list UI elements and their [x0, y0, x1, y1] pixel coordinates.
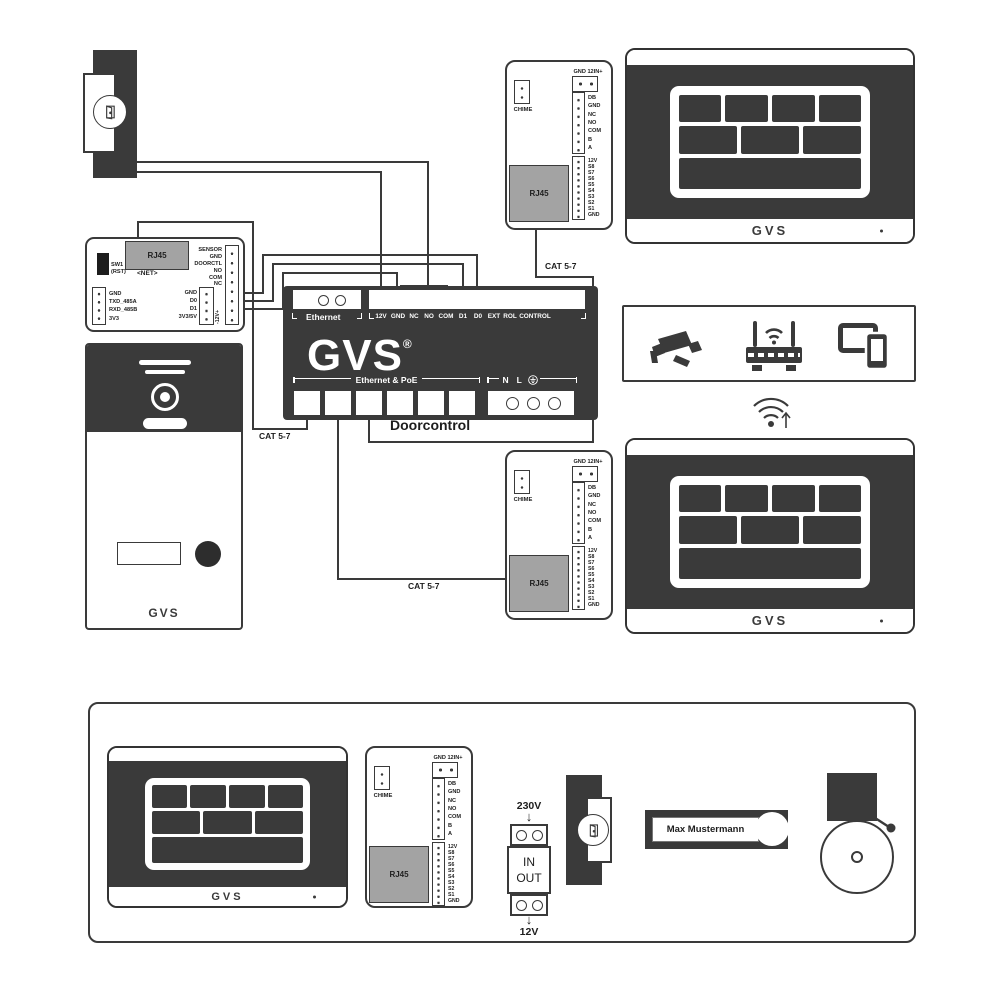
- rj45-port: RJ45: [369, 846, 429, 903]
- s-connector: [572, 156, 585, 220]
- mic-dot: [313, 895, 316, 898]
- pin-label: NO: [588, 119, 612, 127]
- monitor-top-strip: [627, 440, 913, 455]
- monitor-bottom-strip: GVS: [627, 609, 913, 632]
- monitor-top-strip: [109, 748, 346, 761]
- pin-label: NC: [588, 501, 612, 509]
- pin-label: NC: [409, 313, 418, 320]
- pin-label: GND: [448, 788, 472, 796]
- station-brand: GVS: [87, 606, 241, 620]
- io-connector: [199, 287, 214, 325]
- psu-out-label: OUT: [516, 871, 541, 885]
- power-in-connector: [572, 466, 598, 482]
- chime-label: CHIME: [509, 107, 537, 113]
- low-voltage-label: 12V: [505, 926, 553, 938]
- bus-connector: [572, 92, 585, 154]
- s-pin-labels: 12VS8S7S6S5S4S3S2S1GND: [588, 158, 612, 218]
- rs485-connector: [92, 287, 106, 325]
- pin-label: GND: [109, 290, 154, 298]
- pin-label: B: [588, 136, 612, 144]
- pin-label: GND: [588, 602, 612, 608]
- sensor-slot: [143, 418, 187, 429]
- chime-connector: [514, 470, 530, 494]
- chime-module-2: CHIME GND 12IN+ DBGNDNCNOCOMBA 12VS8S7S6…: [505, 450, 613, 620]
- poe-label-row: Ethernet & PoE: [293, 377, 480, 387]
- call-button[interactable]: [195, 541, 221, 567]
- l-label: L: [513, 375, 526, 385]
- pin-label: NC: [588, 111, 612, 119]
- door-icon: [584, 821, 603, 840]
- network-devices-box: [622, 305, 916, 382]
- poe-port-5[interactable]: [417, 390, 445, 416]
- wiring-diagram: RJ45 <NET> SW1 (RST) GNDTXD_485ARXD_485B…: [0, 0, 1000, 1000]
- psu-in-label: IN: [523, 855, 535, 869]
- net-module: RJ45 <NET> SW1 (RST) GNDTXD_485ARXD_485B…: [85, 237, 245, 332]
- chime-connector: [374, 766, 390, 790]
- pin-label: COM: [177, 275, 222, 282]
- pin-label: SENSOR: [177, 247, 222, 254]
- cat5-label-2: CAT 5-7: [408, 581, 440, 591]
- pin-label: DB: [588, 94, 612, 102]
- monitor-brand: GVS: [752, 223, 788, 238]
- gnd12in-label: GND 12IN+: [565, 69, 611, 75]
- monitor-ui-tiles: [670, 86, 870, 198]
- pin-label: GND: [588, 492, 612, 500]
- monitor-bottom-strip: GVS: [627, 219, 913, 242]
- rj45-port: RJ45: [509, 555, 569, 612]
- monitor-top-strip: [627, 50, 913, 65]
- pin-label: COM: [588, 517, 612, 525]
- gnd12in-label: GND 12IN+: [565, 459, 611, 465]
- relay-pin-labels: SENSORGNDDOORCTLNOCOMNC: [177, 247, 222, 288]
- pin-label: GND: [177, 254, 222, 261]
- gnd12in-label: GND 12IN+: [425, 755, 471, 761]
- rs485-pin-labels: GNDTXD_485ARXD_485B3V3: [109, 290, 154, 323]
- pin-label: NC: [448, 797, 472, 805]
- pin-label: COM: [439, 313, 454, 320]
- s-pin-labels: 12VS8S7S6S5S4S3S2S1GND: [588, 548, 612, 608]
- poe-port-2[interactable]: [324, 390, 352, 416]
- doorcontrol: Ethernet 12VGNDNCNOCOMD1D0EXTROLCONTROL …: [283, 286, 598, 420]
- door-strike-lens: [93, 95, 127, 129]
- power-in-connector: [572, 76, 598, 92]
- reset-switch[interactable]: [97, 253, 109, 275]
- pin-label: NO: [424, 313, 434, 320]
- ethernet-label: Ethernet: [306, 312, 340, 322]
- bus-connector: [572, 482, 585, 544]
- cat5-label-1: CAT 5-7: [259, 431, 291, 441]
- pin-label: 3V3: [109, 315, 154, 323]
- pin-label: NO: [177, 268, 222, 275]
- pin-label: A: [588, 144, 612, 152]
- pin-label: NO: [448, 805, 472, 813]
- nameplate-window: Max Mustermann: [652, 817, 759, 842]
- psu-input-terminal: [510, 824, 548, 846]
- sw1-label: SW1 (RST): [111, 262, 135, 275]
- s-pin-labels: 12VS8S7S6S5S4S3S2S1GND: [448, 844, 472, 904]
- pin-label: TXD_485A: [109, 298, 154, 306]
- monitor-ui-tiles: [145, 778, 311, 870]
- pin-label: COM: [448, 813, 472, 821]
- pin-label: A: [588, 534, 612, 542]
- poe-port-3[interactable]: [355, 390, 383, 416]
- mic-dot: [880, 619, 883, 622]
- pin-label: D1: [157, 305, 197, 313]
- cat5-label-3: CAT 5-7: [545, 261, 577, 271]
- monitor-bottom-strip: GVS: [109, 887, 346, 906]
- pin-label: GND: [391, 313, 405, 320]
- pin-label: DB: [588, 484, 612, 492]
- pin-label: EXT: [488, 313, 500, 320]
- doorcontrol-label: Doorcontrol: [390, 417, 470, 433]
- monitor-brand: GVS: [211, 891, 243, 903]
- monitor-screen[interactable]: [109, 761, 346, 887]
- mains-label-row: N L: [487, 377, 577, 387]
- pin-label: NO: [588, 509, 612, 517]
- monitor-screen[interactable]: [627, 455, 913, 609]
- resident-name: Max Mustermann: [667, 824, 745, 835]
- psu-body: IN OUT: [507, 846, 551, 894]
- pin-label: DOORCTL: [177, 261, 222, 268]
- indoor-monitor-2: GVS: [625, 438, 915, 634]
- pin-label: B: [448, 822, 472, 830]
- mains-terminal[interactable]: [487, 390, 575, 416]
- bus-pin-labels: DBGNDNCNOCOMBA: [588, 484, 612, 542]
- pin-label: 12V: [375, 313, 386, 320]
- net-label: <NET>: [137, 270, 158, 277]
- doorcontrol-brand: GVS®: [307, 322, 413, 378]
- wifi-signal-icon: [742, 388, 802, 434]
- pin-label: D0: [157, 297, 197, 305]
- pin-label: ROL: [503, 313, 517, 320]
- pin-label: COM: [588, 127, 612, 135]
- poe-port-4[interactable]: [386, 390, 414, 416]
- bus-pin-labels: DBGNDNCNOCOMBA: [588, 94, 612, 152]
- s-connector: [432, 842, 445, 906]
- pin-label: B: [588, 526, 612, 534]
- indoor-monitor-1: GVS: [625, 48, 915, 244]
- chime-label: CHIME: [509, 497, 537, 503]
- monitor-ui-tiles: [670, 476, 870, 588]
- mobile-devices-icon: [836, 321, 898, 371]
- s-connector: [572, 546, 585, 610]
- n-label: N: [499, 375, 513, 385]
- chime-module-1: CHIME GND 12IN+ DBGNDNCNOCOMBA 12VS8S7S6…: [505, 60, 613, 230]
- arrow-down-icon: ↓: [505, 912, 553, 927]
- chime-label: CHIME: [369, 793, 397, 799]
- earth-ground-icon: [526, 375, 540, 385]
- poe-port-1[interactable]: [293, 390, 321, 416]
- speaker-grille: [139, 360, 191, 365]
- arrow-down-icon: ↓: [505, 809, 553, 824]
- pin-label: GND: [448, 898, 472, 904]
- speaker-grille-2: [145, 370, 185, 374]
- registered-mark: ®: [403, 337, 413, 351]
- ethernet-terminal[interactable]: [292, 289, 362, 310]
- rj45-port: RJ45: [509, 165, 569, 222]
- doorbell-button-panel: Max Mustermann: [645, 810, 788, 849]
- cctv-camera-icon: [646, 323, 704, 369]
- station-nameplate: [117, 542, 181, 565]
- door-strike-2-lens: [577, 814, 609, 846]
- pin-label: GND: [588, 212, 612, 218]
- monitor-screen[interactable]: [627, 65, 913, 219]
- door-icon: [100, 102, 120, 122]
- indoor-monitor-3: GVS: [107, 746, 348, 908]
- pin-label: RXD_485B: [109, 306, 154, 314]
- pin-label: D0: [474, 313, 482, 320]
- power-in-connector: [432, 762, 458, 778]
- wire-port2-to-chime-module2: [338, 414, 508, 579]
- power-label: -12V+: [215, 294, 221, 324]
- station-camera-panel: [87, 345, 241, 432]
- bus-pin-labels: DBGNDNCNOCOMBA: [448, 780, 472, 838]
- mic-dot: [880, 229, 883, 232]
- monitor-brand: GVS: [752, 613, 788, 628]
- bus-connector: [432, 778, 445, 840]
- poe-port-6[interactable]: [448, 390, 476, 416]
- io-pin-labels: GNDD0D13V3/5V: [157, 289, 197, 321]
- chime-module-3: CHIME GND 12IN+ DBGNDNCNOCOMBA 12VS8S7S6…: [365, 746, 473, 908]
- chime-bell-center: [851, 851, 863, 863]
- pin-label: DB: [448, 780, 472, 788]
- relay-connector: [225, 245, 239, 325]
- pin-label: A: [448, 830, 472, 838]
- pin-label: GND: [157, 289, 197, 297]
- pin-label: GND: [588, 102, 612, 110]
- pin-label: D1: [459, 313, 467, 320]
- camera-lens-center: [160, 392, 170, 402]
- pin-label: CONTROL: [519, 313, 551, 320]
- poe-label: Ethernet & PoE: [351, 375, 423, 385]
- doorbell-button[interactable]: [755, 812, 789, 846]
- wifi-router-icon: [742, 315, 806, 377]
- door-station: GVS: [85, 343, 243, 630]
- chime-connector: [514, 80, 530, 104]
- main-terminal[interactable]: [368, 289, 586, 310]
- pin-label: 3V3/5V: [157, 313, 197, 321]
